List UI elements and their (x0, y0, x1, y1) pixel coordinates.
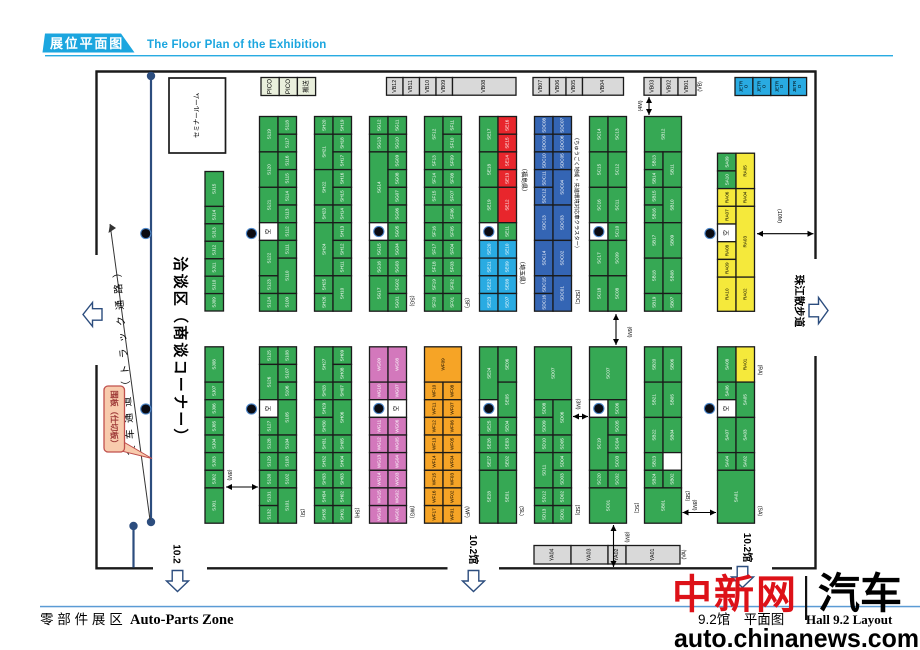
svg-text:WF05: WF05 (450, 437, 455, 450)
svg-text:SD05: SD05 (560, 438, 565, 450)
svg-text:SE28: SE28 (486, 491, 491, 503)
svg-text:SF04: SF04 (450, 243, 455, 254)
svg-text:(6M): (6M) (626, 326, 632, 337)
svg-text:SH33: SH33 (321, 473, 326, 485)
svg-text:S114: S114 (285, 190, 290, 201)
svg-text:WF17: WF17 (431, 508, 436, 521)
svg-text:(SG): (SG) (409, 296, 415, 307)
svg-text:SD13: SD13 (541, 508, 546, 520)
svg-text:SH25: SH25 (321, 278, 326, 290)
svg-text:SG15: SG15 (376, 243, 381, 255)
svg-text:SF19: SF19 (431, 279, 436, 290)
svg-text:SG16: SG16 (376, 261, 381, 273)
svg-text:SE09: SE09 (505, 261, 510, 273)
svg-text:SE27: SE27 (486, 455, 491, 467)
svg-text:WG03: WG03 (395, 472, 400, 485)
svg-text:SH35: SH35 (321, 508, 326, 520)
svg-text:SH20: SH20 (321, 119, 326, 131)
svg-text:S117: S117 (285, 137, 290, 148)
svg-text:SDC01: SDC01 (560, 286, 565, 301)
svg-text:SG13: SG13 (376, 137, 381, 149)
svg-text:SG04: SG04 (395, 243, 400, 255)
svg-text:SG01: SG01 (395, 296, 400, 308)
svg-text:SJ12: SJ12 (212, 244, 217, 255)
svg-text:WF04: WF04 (450, 455, 455, 468)
svg-text:SF17: SF17 (431, 243, 436, 254)
svg-text:WF11: WF11 (431, 402, 436, 414)
svg-text:SD11: SD11 (541, 464, 546, 476)
svg-text:S104: S104 (285, 438, 290, 449)
svg-text:SE26: SE26 (486, 438, 491, 450)
svg-text:SH19: SH19 (340, 119, 345, 131)
svg-text:SC07: SC07 (606, 367, 611, 379)
svg-text:SH26: SH26 (321, 296, 326, 308)
svg-text:S132: S132 (266, 509, 271, 520)
svg-text:零部件展区: 零部件展区 (40, 612, 127, 627)
svg-text:(WG): (WG) (409, 506, 415, 519)
svg-text:S111: S111 (285, 244, 290, 254)
svg-text:WF15: WF15 (431, 473, 436, 486)
svg-text:SA06: SA06 (724, 385, 729, 397)
svg-text:SC06: SC06 (615, 402, 620, 414)
svg-text:SH12: SH12 (340, 243, 345, 255)
svg-text:SF20: SF20 (431, 296, 436, 307)
svg-text:SE12: SE12 (505, 199, 510, 211)
svg-text:SE18: SE18 (486, 164, 491, 176)
svg-text:SB11: SB11 (670, 164, 675, 175)
svg-text:SD04: SD04 (560, 455, 565, 467)
svg-text:SD07: SD07 (551, 367, 556, 379)
svg-text:YA02: YA02 (614, 548, 620, 561)
svg-text:SC04: SC04 (615, 438, 620, 450)
svg-text:(4M): (4M) (638, 100, 644, 111)
svg-text:SE11: SE11 (505, 226, 510, 237)
svg-text:SDC12: SDC12 (541, 188, 546, 203)
svg-text:YA04: YA04 (550, 548, 556, 561)
svg-text:SF01: SF01 (450, 296, 455, 307)
svg-text:SE20: SE20 (486, 243, 491, 255)
svg-text:PICO: PICO (267, 79, 274, 94)
svg-text:SC18: SC18 (596, 287, 601, 299)
svg-text:S106: S106 (285, 385, 290, 396)
svg-text:YA03: YA03 (587, 548, 593, 561)
svg-text:SF13: SF13 (431, 155, 436, 166)
svg-text:SB20: SB20 (651, 358, 656, 370)
svg-text:SDC16: SDC16 (541, 294, 546, 309)
svg-text:（埼玉県）: （埼玉県） (518, 258, 526, 288)
svg-text:SH02: SH02 (340, 491, 345, 503)
svg-text:SA04: SA04 (724, 455, 729, 467)
svg-text:SA07: SA07 (724, 429, 729, 441)
svg-text:SE13: SE13 (505, 172, 510, 184)
svg-text:S107: S107 (285, 367, 290, 378)
svg-text:SDC09: SDC09 (541, 135, 546, 150)
svg-text:WF06: WF06 (450, 420, 455, 433)
svg-text:SD03: SD03 (560, 473, 565, 485)
svg-text:SDC14: SDC14 (541, 250, 546, 265)
svg-text:SG06: SG06 (395, 207, 400, 219)
svg-text:RA05: RA05 (743, 165, 748, 177)
svg-text:SB01: SB01 (661, 500, 666, 512)
svg-text:SB04: SB04 (670, 429, 675, 441)
svg-text:SH13: SH13 (340, 225, 345, 237)
svg-text:SC13: SC13 (615, 128, 620, 140)
svg-text:VB06: VB06 (555, 80, 561, 93)
svg-text:WG02: WG02 (395, 490, 400, 503)
svg-text:SD01: SD01 (560, 508, 565, 520)
svg-text:SH08: SH08 (340, 367, 345, 379)
svg-text:SDC05: SDC05 (560, 153, 565, 168)
svg-text:(VA): (VA) (682, 549, 688, 559)
svg-text:SH03: SH03 (340, 473, 345, 485)
svg-text:SF10: SF10 (450, 137, 455, 148)
svg-text:(VB): (VB) (698, 81, 704, 92)
svg-text:中新网: 中新网 (672, 572, 798, 617)
svg-text:SC20: SC20 (596, 473, 601, 485)
svg-text:珠江散步道: 珠江散步道 (793, 275, 806, 328)
svg-text:SDC04: SDC04 (560, 179, 565, 194)
svg-text:SJ15: SJ15 (212, 183, 217, 194)
svg-text:S102: S102 (285, 473, 290, 484)
svg-text:SE06: SE06 (505, 358, 510, 370)
svg-text:SD06: SD06 (560, 411, 565, 423)
svg-text:SH14: SH14 (340, 208, 345, 220)
svg-text:SH32: SH32 (321, 455, 326, 467)
svg-text:S124: S124 (266, 297, 271, 308)
svg-text:SB15: SB15 (651, 190, 656, 202)
svg-text:WG16: WG16 (376, 507, 381, 520)
svg-text:SE04: SE04 (505, 420, 510, 432)
svg-text:SB10: SB10 (670, 199, 675, 211)
svg-text:SH15: SH15 (340, 190, 345, 202)
svg-text:SC03: SC03 (615, 455, 620, 467)
svg-text:SA08: SA08 (724, 358, 729, 370)
svg-text:SE02: SE02 (505, 455, 510, 467)
svg-text:SF02: SF02 (450, 279, 455, 290)
svg-text:SJ01: SJ01 (212, 500, 217, 511)
svg-text:（ちゅうごく地域・先進環境対応車クラスター）: （ちゅうごく地域・先進環境対応車クラスター） (573, 135, 581, 251)
svg-text:RA06: RA06 (724, 191, 729, 203)
svg-text:搬送: 搬送 (302, 80, 310, 93)
svg-text:(SC): (SC) (633, 503, 639, 514)
svg-text:WF12: WF12 (431, 420, 436, 433)
svg-text:SB13: SB13 (651, 155, 656, 167)
svg-text:WF02: WF02 (450, 490, 455, 503)
svg-text:SG14: SG14 (376, 181, 381, 193)
svg-text:汽车: 汽车 (818, 570, 902, 617)
svg-text:SE03: SE03 (505, 438, 510, 450)
svg-text:S116: S116 (285, 155, 290, 166)
svg-text:SC10: SC10 (615, 225, 620, 237)
svg-text:SB16: SB16 (651, 208, 656, 220)
svg-text:SA05: SA05 (743, 394, 748, 406)
svg-text:(SI): (SI) (299, 509, 305, 518)
svg-text:10.2: 10.2 (171, 544, 182, 564)
svg-text:SA03: SA03 (743, 429, 748, 441)
svg-text:WG05: WG05 (395, 437, 400, 450)
svg-text:SH31: SH31 (321, 438, 326, 450)
svg-text:SF06: SF06 (450, 208, 455, 219)
svg-text:VB10: VB10 (425, 80, 431, 93)
svg-text:SG07: SG07 (395, 190, 400, 202)
svg-text:WG14: WG14 (376, 472, 381, 485)
svg-text:SJ03: SJ03 (212, 456, 217, 467)
svg-text:SD09: SD09 (541, 420, 546, 432)
svg-text:空: 空 (722, 230, 730, 236)
svg-text:S105: S105 (285, 412, 290, 423)
svg-text:S126: S126 (266, 376, 271, 387)
svg-text:VB01: VB01 (684, 80, 690, 93)
svg-text:SH11: SH11 (340, 261, 345, 273)
svg-text:VB03: VB03 (650, 80, 656, 93)
svg-text:SF08: SF08 (450, 172, 455, 183)
svg-text:SH06: SH06 (340, 411, 345, 423)
svg-text:S119: S119 (266, 129, 271, 140)
svg-text:SA10: SA10 (724, 174, 729, 186)
svg-text:S110: S110 (285, 270, 290, 281)
svg-text:WG01: WG01 (395, 507, 400, 520)
svg-text:SH28: SH28 (321, 385, 326, 397)
svg-text:(RA): (RA) (757, 365, 763, 376)
svg-text:SF18: SF18 (431, 261, 436, 272)
svg-text:SA01: SA01 (734, 491, 739, 503)
svg-text:SDC02: SDC02 (560, 250, 565, 265)
svg-text:SC17: SC17 (596, 252, 601, 264)
svg-text:VB07: VB07 (538, 80, 544, 93)
svg-text:S122: S122 (266, 252, 271, 263)
svg-text:空: 空 (264, 228, 272, 234)
svg-text:SB24: SB24 (651, 473, 656, 485)
svg-text:S128: S128 (266, 438, 271, 449)
svg-text:WF08: WF08 (450, 384, 455, 397)
svg-text:SF07: SF07 (450, 190, 455, 201)
svg-text:SH17: SH17 (340, 155, 345, 167)
svg-text:SB23: SB23 (651, 455, 656, 467)
svg-text:围板（仕切板）: 围板（仕切板） (110, 390, 120, 447)
svg-text:SB05: SB05 (670, 394, 675, 406)
svg-text:SJ06: SJ06 (212, 403, 217, 414)
svg-text:SB19: SB19 (651, 296, 656, 308)
svg-text:Auto-Parts Zone: Auto-Parts Zone (130, 612, 234, 628)
svg-text:VB04: VB04 (600, 80, 606, 93)
svg-text:SE16: SE16 (505, 119, 510, 131)
svg-text:(SDC): (SDC) (574, 290, 580, 305)
svg-text:RA03: RA03 (743, 236, 748, 248)
svg-text:SB09: SB09 (670, 234, 675, 246)
svg-text:SF09: SF09 (450, 155, 455, 166)
svg-text:VB05: VB05 (571, 80, 577, 93)
svg-text:SJ04: SJ04 (212, 438, 217, 449)
svg-text:SB18: SB18 (651, 270, 656, 282)
svg-text:SH07: SH07 (340, 385, 345, 397)
svg-text:S127: S127 (266, 420, 271, 431)
svg-text:WF09: WF09 (441, 358, 446, 371)
svg-text:RA07: RA07 (724, 209, 729, 221)
svg-text:WF01: WF01 (450, 508, 455, 521)
svg-text:SB07: SB07 (670, 296, 675, 308)
svg-text:SDC10: SDC10 (541, 153, 546, 168)
svg-text:WF16: WF16 (431, 490, 436, 503)
svg-text:(8M): (8M) (624, 531, 630, 542)
svg-text:SC05: SC05 (615, 420, 620, 432)
svg-text:SE07: SE07 (505, 296, 510, 308)
svg-text:SH10: SH10 (340, 287, 345, 299)
svg-text:SB14: SB14 (651, 172, 656, 184)
svg-text:(SH): (SH) (354, 508, 360, 519)
svg-text:S109: S109 (285, 296, 290, 307)
svg-text:SE01: SE01 (505, 491, 510, 503)
svg-text:（福島県）: （福島県） (520, 165, 528, 195)
svg-text:SB12: SB12 (661, 128, 666, 140)
svg-text:SF03: SF03 (450, 261, 455, 272)
svg-text:S123: S123 (266, 279, 271, 290)
svg-text:SD08: SD08 (541, 402, 546, 414)
svg-text:SJ08: SJ08 (212, 359, 217, 370)
svg-text:SDC07: SDC07 (560, 117, 565, 132)
svg-text:SDC06: SDC06 (560, 135, 565, 150)
svg-text:VB02: VB02 (667, 80, 673, 93)
svg-text:セミナールーム: セミナールーム (193, 92, 201, 138)
svg-text:S125: S125 (266, 350, 271, 361)
svg-text:SF05: SF05 (450, 226, 455, 237)
svg-text:SDC03: SDC03 (560, 215, 565, 230)
svg-text:SG05: SG05 (395, 225, 400, 237)
svg-text:空: 空 (392, 405, 400, 411)
svg-text:SE08: SE08 (505, 279, 510, 291)
svg-text:SG12: SG12 (376, 119, 381, 131)
svg-text:(SB): (SB) (684, 491, 690, 502)
svg-text:SG08: SG08 (395, 172, 400, 184)
svg-text:RA04: RA04 (743, 191, 748, 203)
svg-text:RA01: RA01 (743, 358, 748, 370)
svg-text:SG10: SG10 (395, 137, 400, 149)
svg-text:SJ14: SJ14 (212, 209, 217, 220)
svg-text:SF14: SF14 (431, 172, 436, 183)
svg-text:SE14: SE14 (505, 155, 510, 167)
svg-text:VB12: VB12 (392, 80, 398, 93)
svg-text:RA09: RA09 (724, 262, 729, 274)
svg-text:SC01: SC01 (606, 499, 611, 511)
svg-text:SH23: SH23 (321, 208, 326, 220)
svg-text:S115: S115 (285, 173, 290, 184)
svg-text:SC19: SC19 (596, 438, 601, 450)
svg-text:SH04: SH04 (340, 455, 345, 467)
svg-text:WG12: WG12 (376, 437, 381, 450)
svg-text:SJ13: SJ13 (212, 227, 217, 238)
svg-text:SE17: SE17 (486, 128, 491, 140)
svg-text:SE24: SE24 (486, 367, 491, 379)
svg-text:The Floor Plan of the Exhibiti: The Floor Plan of the Exhibition (147, 39, 327, 51)
svg-text:WF07: WF07 (450, 402, 455, 415)
svg-text:WF03: WF03 (450, 473, 455, 486)
svg-text:WG04: WG04 (395, 455, 400, 468)
svg-text:SC14: SC14 (596, 128, 601, 140)
svg-text:SF11: SF11 (450, 120, 455, 131)
svg-text:SF15: SF15 (431, 190, 436, 201)
svg-text:S131: S131 (266, 491, 271, 502)
svg-text:SDC08: SDC08 (541, 117, 546, 132)
svg-text:(8M): (8M) (691, 499, 697, 510)
svg-text:SDC15: SDC15 (541, 277, 546, 292)
svg-text:SE15: SE15 (505, 137, 510, 149)
svg-text:VB09: VB09 (441, 80, 447, 93)
svg-text:auto.chinanews.com: auto.chinanews.com (674, 623, 919, 650)
svg-text:SH09: SH09 (340, 349, 345, 361)
svg-text:SH18: SH18 (340, 137, 345, 149)
svg-text:SG11: SG11 (395, 119, 400, 131)
svg-text:SC08: SC08 (615, 287, 620, 299)
svg-text:SE25: SE25 (486, 420, 491, 432)
svg-text:S121: S121 (266, 199, 271, 210)
svg-text:SB21: SB21 (651, 394, 656, 406)
svg-text:SH30: SH30 (321, 420, 326, 432)
svg-text:(SL): (SL) (518, 506, 524, 516)
svg-text:10.2馆: 10.2馆 (741, 533, 754, 562)
svg-text:SH05: SH05 (340, 438, 345, 450)
svg-text:SH34: SH34 (321, 491, 326, 503)
svg-text:SH24: SH24 (321, 243, 326, 255)
svg-text:(SD): (SD) (574, 505, 580, 516)
svg-text:WG07: WG07 (395, 384, 400, 397)
svg-text:SC09: SC09 (615, 252, 620, 264)
svg-text:WG09: WG09 (376, 357, 381, 370)
svg-text:SDC11: SDC11 (541, 171, 546, 186)
svg-text:SB02: SB02 (670, 473, 675, 485)
svg-text:RA02: RA02 (743, 288, 748, 300)
svg-text:SE23: SE23 (486, 296, 491, 308)
svg-text:SA09: SA09 (724, 156, 729, 168)
svg-text:(8M): (8M) (226, 469, 232, 480)
svg-text:展位平面图: 展位平面图 (50, 36, 124, 51)
svg-text:SD10: SD10 (541, 438, 546, 450)
svg-text:SJ10: SJ10 (212, 279, 217, 290)
svg-text:SJ07: SJ07 (212, 385, 217, 396)
svg-text:SH27: SH27 (321, 358, 326, 370)
svg-text:SC11: SC11 (615, 199, 620, 211)
svg-text:SF16: SF16 (431, 226, 436, 237)
svg-text:RA08: RA08 (724, 244, 729, 256)
svg-text:(3M): (3M) (575, 398, 581, 409)
svg-text:SC16: SC16 (596, 199, 601, 211)
svg-text:SG02: SG02 (395, 278, 400, 290)
svg-text:SH21: SH21 (321, 146, 326, 158)
svg-text:PICO: PICO (285, 79, 292, 94)
svg-text:(SF): (SF) (464, 298, 470, 308)
svg-text:SE19: SE19 (486, 199, 491, 211)
svg-text:SJ09: SJ09 (212, 297, 217, 308)
svg-text:WG06: WG06 (395, 419, 400, 432)
svg-text:SD12: SD12 (541, 491, 546, 503)
svg-text:S130: S130 (266, 473, 271, 484)
svg-text:WF14: WF14 (431, 455, 436, 468)
svg-text:S112: S112 (285, 226, 290, 237)
svg-text:SH01: SH01 (340, 508, 345, 520)
svg-text:SG17: SG17 (376, 287, 381, 299)
svg-text:SC15: SC15 (596, 163, 601, 175)
svg-text:WF10: WF10 (431, 384, 436, 397)
svg-text:SC12: SC12 (615, 163, 620, 175)
svg-text:空: 空 (722, 405, 730, 411)
svg-text:SG03: SG03 (395, 261, 400, 273)
svg-text:VB08: VB08 (481, 80, 487, 93)
svg-text:S118: S118 (285, 120, 290, 131)
svg-text:SH29: SH29 (321, 402, 326, 414)
svg-text:(WF): (WF) (464, 506, 470, 518)
svg-text:SE22: SE22 (486, 279, 491, 291)
svg-text:SDC13: SDC13 (541, 215, 546, 230)
svg-text:空: 空 (264, 405, 272, 411)
svg-text:S129: S129 (266, 456, 271, 467)
